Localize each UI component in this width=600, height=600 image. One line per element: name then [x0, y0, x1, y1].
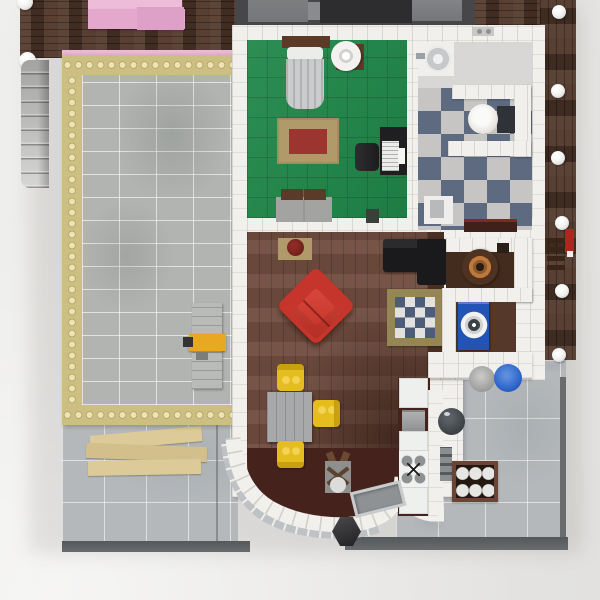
bath-mat	[464, 219, 517, 232]
roof-deck-east	[475, 0, 540, 25]
dresser-drawer-1	[281, 189, 303, 200]
roof-center-dark	[320, 0, 412, 23]
well-glint	[444, 412, 450, 416]
boardwalk-east	[540, 0, 576, 360]
dresser-drawer-2	[304, 189, 326, 200]
boardwalk-stud-6	[552, 348, 566, 362]
checkered-rug	[387, 289, 443, 346]
waste-bin	[366, 209, 379, 223]
pink-sofa-seat-right	[137, 7, 184, 30]
black-sofa-chaise	[417, 239, 447, 285]
plate-edge-west	[62, 541, 250, 552]
toilet-alcove-bottom	[448, 141, 531, 156]
dining-table	[267, 392, 312, 442]
dining-chair-east	[313, 400, 340, 427]
plank-3	[88, 459, 201, 476]
plank-stack	[84, 428, 208, 484]
bath-sink-fixture	[430, 200, 444, 218]
round-table	[462, 249, 498, 285]
tool-tip	[183, 337, 193, 347]
pool-frame-top	[62, 55, 237, 75]
boardwalk-stud-3	[551, 151, 565, 165]
dining-chair-south	[277, 441, 304, 468]
boardwalk-stud-2	[551, 84, 565, 98]
dining-chair-north	[277, 364, 304, 391]
dresser	[276, 197, 332, 222]
plate-edge-east	[345, 537, 568, 550]
plant	[287, 239, 304, 256]
blue-barrel	[494, 364, 522, 392]
gray-barrel	[469, 366, 495, 392]
kitchen-counter-top	[399, 378, 428, 408]
laundry-wall-west	[442, 302, 456, 352]
roof-slope-right	[412, 0, 462, 21]
wall-gear	[440, 447, 452, 481]
ceiling-fan	[331, 41, 361, 71]
wall-clip-dot-2	[486, 29, 491, 34]
kitchen-counter-mid	[399, 431, 428, 451]
red-fixture	[565, 229, 574, 253]
boardwalk-stud-4	[555, 216, 569, 230]
coat-stand-pole	[330, 477, 346, 493]
tool-part	[196, 352, 208, 360]
roof-vent	[308, 2, 320, 20]
red-fixture-tip	[567, 251, 573, 257]
bottle-crate	[452, 461, 498, 502]
ladder-detail	[547, 236, 565, 270]
stairs	[21, 60, 49, 188]
well	[438, 408, 465, 435]
roof-slope-left	[248, 0, 308, 22]
shower-arm	[416, 53, 425, 59]
nook-wall-mid	[442, 288, 532, 302]
roof-strip	[235, 0, 540, 25]
shower-head	[425, 46, 451, 72]
boardwalk-stud-1	[552, 5, 566, 19]
tool-body	[189, 334, 226, 351]
kitchen-stove	[399, 451, 428, 487]
patio-seam	[216, 424, 218, 545]
toilet-tank	[497, 106, 515, 133]
pool-frame-left	[62, 75, 82, 405]
washing-machine-door	[460, 311, 488, 339]
wall-clip-dot-1	[477, 29, 482, 34]
render-stage	[0, 0, 600, 600]
pool-frame-bottom	[62, 405, 237, 425]
boardwalk-stud-5	[555, 284, 569, 298]
desk-chair	[355, 143, 379, 171]
laptop	[382, 141, 399, 171]
laptop-lid	[398, 148, 405, 164]
bedroom-rug-center	[289, 129, 327, 154]
nook-small-box	[497, 243, 509, 253]
kitchen-oven	[402, 410, 425, 431]
toilet-bowl	[468, 104, 498, 134]
bed-blanket	[286, 59, 324, 109]
